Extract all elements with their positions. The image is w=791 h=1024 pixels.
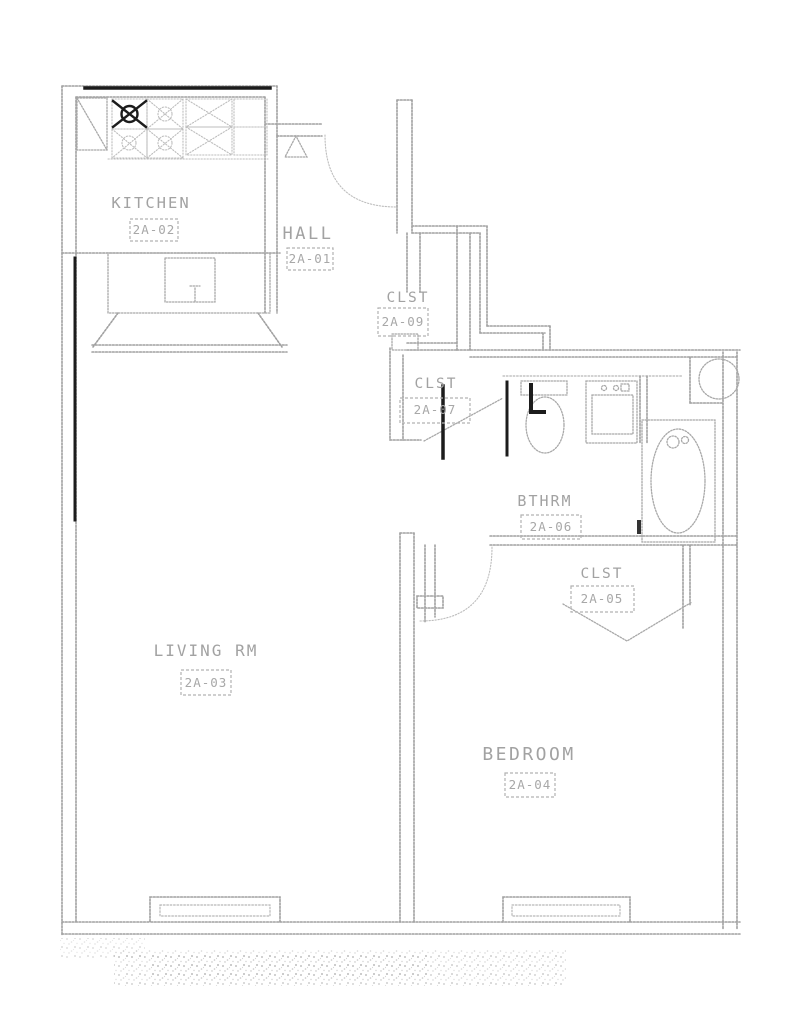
- bedroom-label: BEDROOM: [482, 744, 575, 765]
- kitchen-label: KITCHEN: [111, 194, 190, 212]
- hall-closet-label: CLST: [387, 290, 430, 306]
- scanned-floor-plan-page: KITCHEN 2A-02 HALL 2A-01 CLST 2A-09 CLST…: [0, 0, 791, 1024]
- bathroom-tag: 2A-06: [530, 519, 573, 534]
- bathroom-label: BTHRM: [517, 492, 572, 510]
- hall-tag: 2A-01: [289, 251, 332, 266]
- bedroom-closet-label: CLST: [581, 566, 624, 582]
- bedroom-closet-tag: 2A-05: [581, 591, 624, 606]
- linen-closet-tag: 2A-07: [414, 402, 457, 417]
- kitchen-tag: 2A-02: [133, 222, 176, 237]
- dark-wall-tick: [637, 520, 641, 534]
- hall-closet-tag: 2A-09: [382, 314, 425, 329]
- living-room-label: LIVING RM: [154, 641, 259, 660]
- bedroom-tag: 2A-04: [509, 777, 552, 792]
- linen-closet-label: CLST: [415, 376, 458, 392]
- living-room-tag: 2A-03: [185, 675, 228, 690]
- paper-background: [0, 0, 791, 1024]
- floor-plan-drawing: KITCHEN 2A-02 HALL 2A-01 CLST 2A-09 CLST…: [0, 0, 791, 1024]
- hall-label: HALL: [283, 224, 334, 244]
